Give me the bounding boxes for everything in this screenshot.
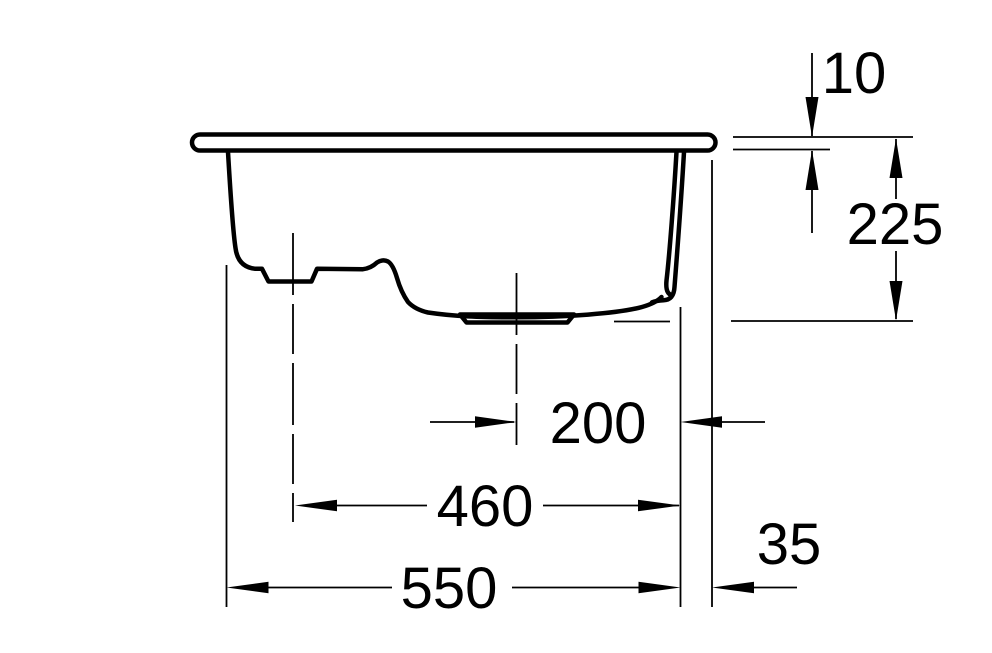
arrowhead-left xyxy=(227,582,269,594)
dimension-label-460: 460 xyxy=(437,474,534,539)
sink-outline xyxy=(192,135,716,323)
dimension-main-drain-offset: 200 xyxy=(430,391,765,456)
dimension-label-35: 35 xyxy=(757,512,822,577)
dimension-label-10: 10 xyxy=(822,41,887,106)
sink-section-drawing: 10 225 200 460 550 35 xyxy=(0,0,992,653)
dimension-bowl-width: 550 xyxy=(227,556,681,621)
arrowhead-left xyxy=(681,416,723,428)
arrowhead-right xyxy=(638,500,681,512)
dimension-label-200: 200 xyxy=(550,391,647,456)
arrowhead-left xyxy=(712,582,754,594)
dimension-rim-overhang: 35 xyxy=(712,512,821,593)
arrowhead-right xyxy=(639,582,681,594)
technical-drawing-canvas: 10 225 200 460 550 35 xyxy=(0,0,992,653)
dimension-label-550: 550 xyxy=(401,556,498,621)
dimension-left-drain-span: 460 xyxy=(295,474,681,539)
arrowhead-right xyxy=(475,416,517,428)
dimension-label-225: 225 xyxy=(847,192,944,257)
arrowhead-left xyxy=(295,500,337,512)
arrowhead-down xyxy=(890,281,903,321)
dimension-total-depth: 225 xyxy=(847,139,944,321)
rim xyxy=(192,135,716,151)
arrowhead-down xyxy=(806,97,819,137)
